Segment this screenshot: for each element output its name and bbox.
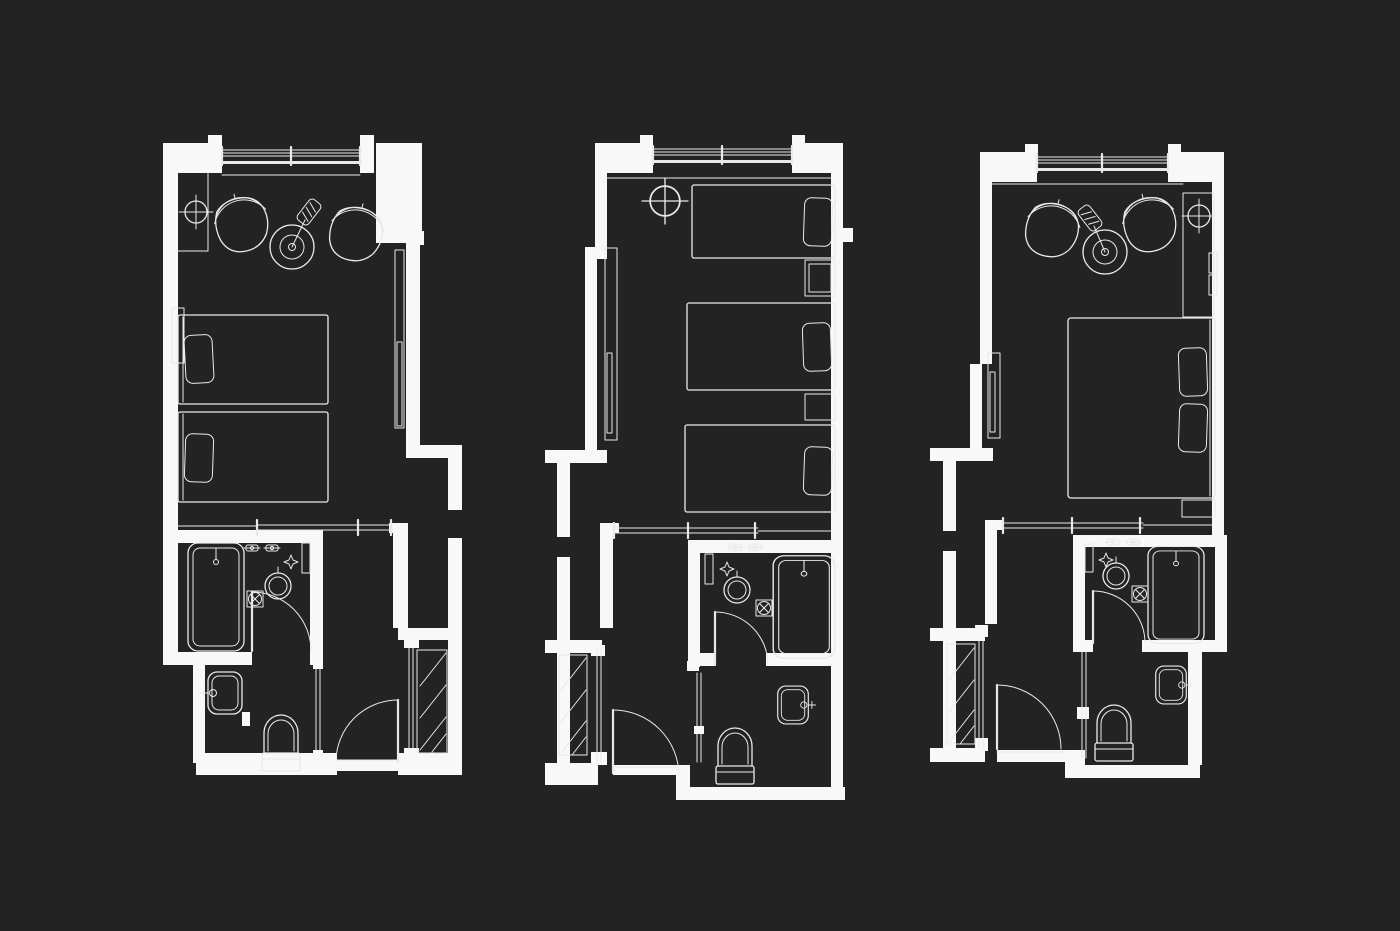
pillow — [1178, 404, 1208, 453]
floor-drain-icon — [1132, 586, 1148, 602]
washbasin — [1156, 666, 1194, 704]
faucet-icon — [264, 545, 280, 551]
single-bed — [178, 412, 328, 502]
vanity-basin — [1103, 557, 1129, 589]
faucet-icon — [747, 544, 763, 550]
washbasin — [778, 686, 816, 724]
towel-bar — [1085, 544, 1093, 572]
bathtub — [188, 543, 244, 651]
pillow — [1178, 348, 1208, 397]
toilet — [716, 728, 754, 784]
bathroom — [1085, 539, 1204, 644]
faucet-icon — [727, 544, 743, 550]
center-mark-icon — [1182, 193, 1217, 317]
bathroom — [705, 544, 835, 665]
pillow — [184, 334, 214, 383]
toilet — [1095, 705, 1133, 761]
floor-plan-twin-room — [158, 128, 476, 790]
pillow — [803, 198, 833, 247]
floor-plans-canvas — [0, 0, 1400, 931]
entry — [947, 641, 1065, 752]
toilet-room — [694, 673, 816, 784]
center-mark-icon — [642, 178, 688, 224]
console-panel — [605, 248, 617, 440]
single-bed — [692, 185, 835, 258]
towel-bar — [705, 554, 713, 584]
bathtub — [1148, 546, 1204, 643]
window — [222, 147, 360, 175]
nightstand — [805, 394, 835, 420]
floor-plan-triple-room — [540, 128, 862, 810]
single-bed — [178, 315, 328, 404]
console-panel — [988, 353, 1000, 438]
sliding-partition — [1002, 518, 1212, 533]
floor-plan-double-room — [926, 128, 1232, 790]
center-mark-icon — [178, 173, 213, 251]
faucet-icon — [244, 545, 260, 551]
vanity-basin — [724, 571, 750, 603]
armchair — [1020, 193, 1085, 262]
walls — [545, 135, 853, 800]
entry — [336, 648, 447, 762]
wardrobe-panel — [395, 250, 404, 428]
bathtub — [773, 556, 835, 659]
floor-lamp — [289, 197, 323, 250]
sliding-partition — [613, 523, 831, 538]
entry — [559, 650, 679, 776]
single-bed — [687, 303, 835, 390]
washbasin — [200, 672, 242, 714]
shower-diamond-icon — [284, 555, 298, 569]
shower-diamond-icon — [720, 562, 734, 576]
nightstand — [805, 260, 835, 296]
faucet-icon — [1125, 539, 1141, 545]
floor-drain-icon — [756, 600, 772, 616]
pillow — [184, 434, 214, 483]
single-bed — [685, 425, 835, 512]
pillow — [803, 447, 833, 496]
double-bed — [1068, 318, 1215, 498]
hatched-closet — [409, 648, 447, 753]
shower-diamond-icon — [1099, 553, 1113, 567]
towel-bar — [302, 543, 310, 573]
bathroom — [188, 543, 311, 651]
faucet-icon — [1105, 539, 1121, 545]
pillow — [802, 323, 832, 372]
nightstand — [1182, 500, 1215, 517]
armchair — [209, 188, 274, 257]
toilet-room — [1082, 652, 1194, 761]
floor-drain-icon — [247, 591, 263, 607]
